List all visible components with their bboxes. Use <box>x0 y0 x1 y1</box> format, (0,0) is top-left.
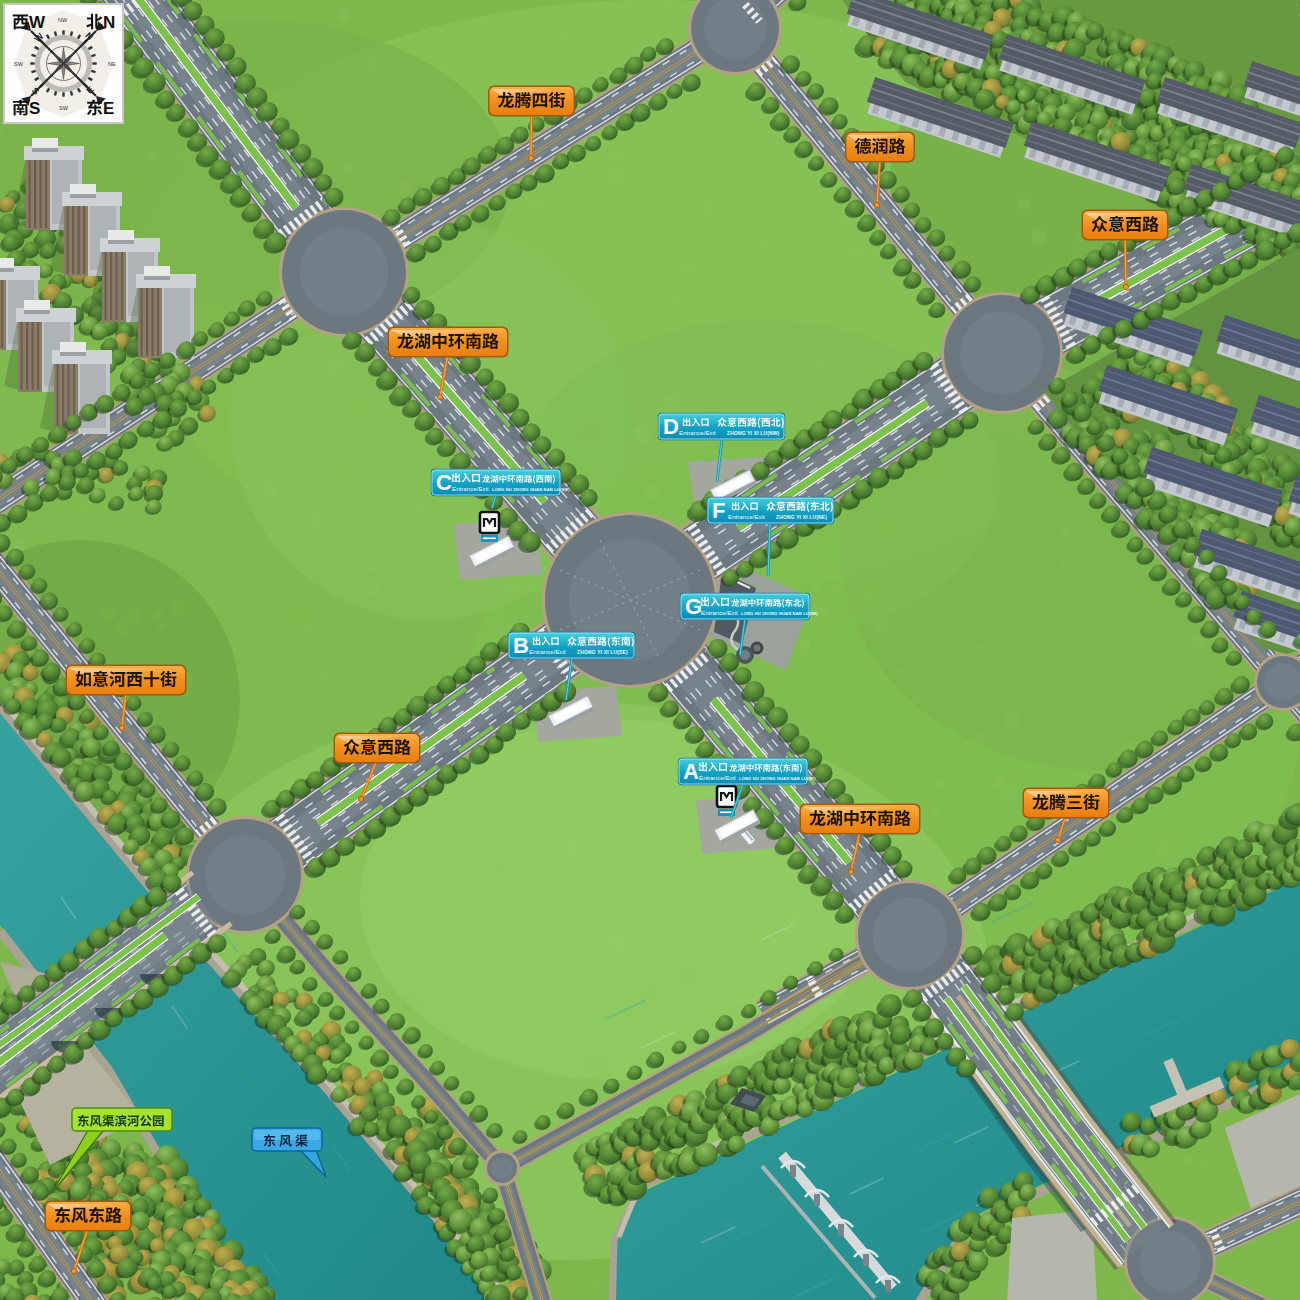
svg-text:LONG HU ZHONG HUAN NAN LU(SW): LONG HU ZHONG HUAN NAN LU(SW) <box>492 487 570 492</box>
svg-text:S: S <box>29 99 40 118</box>
svg-text:Entrance/Exit: Entrance/Exit <box>529 648 566 655</box>
svg-text:LONG HU ZHONG HUAN NAN LU(NE): LONG HU ZHONG HUAN NAN LU(NE) <box>741 611 818 616</box>
svg-text:E: E <box>103 99 114 118</box>
svg-text:F: F <box>712 498 725 523</box>
svg-text:LONG HU ZHONG HUAN NAN LU(SE): LONG HU ZHONG HUAN NAN LU(SE) <box>739 776 816 781</box>
svg-text:Entrance/Exit: Entrance/Exit <box>701 609 738 616</box>
svg-text:SW: SW <box>14 61 24 67</box>
svg-text:SW: SW <box>59 105 69 111</box>
svg-text:Entrance/Exit: Entrance/Exit <box>679 429 716 436</box>
svg-text:N: N <box>103 13 115 32</box>
svg-text:G: G <box>685 594 702 619</box>
svg-text:ZHONG YI XI LU(NE): ZHONG YI XI LU(NE) <box>776 515 827 520</box>
svg-text:Entrance/Exit: Entrance/Exit <box>452 485 489 492</box>
svg-text:Entrance/Exit: Entrance/Exit <box>728 513 765 520</box>
svg-text:D: D <box>663 414 679 439</box>
svg-text:NE: NE <box>108 61 116 67</box>
svg-text:C: C <box>436 470 452 495</box>
svg-text:ZHONG YI XI LU(SE): ZHONG YI XI LU(SE) <box>577 650 628 655</box>
svg-text:NW: NW <box>58 17 68 23</box>
svg-text:B: B <box>513 633 529 658</box>
svg-text:Entrance/Exit: Entrance/Exit <box>699 774 736 781</box>
svg-text:W: W <box>29 13 46 32</box>
svg-text:ZHONG YI XI LU(NW): ZHONG YI XI LU(NW) <box>727 431 780 436</box>
svg-text:A: A <box>683 759 699 784</box>
